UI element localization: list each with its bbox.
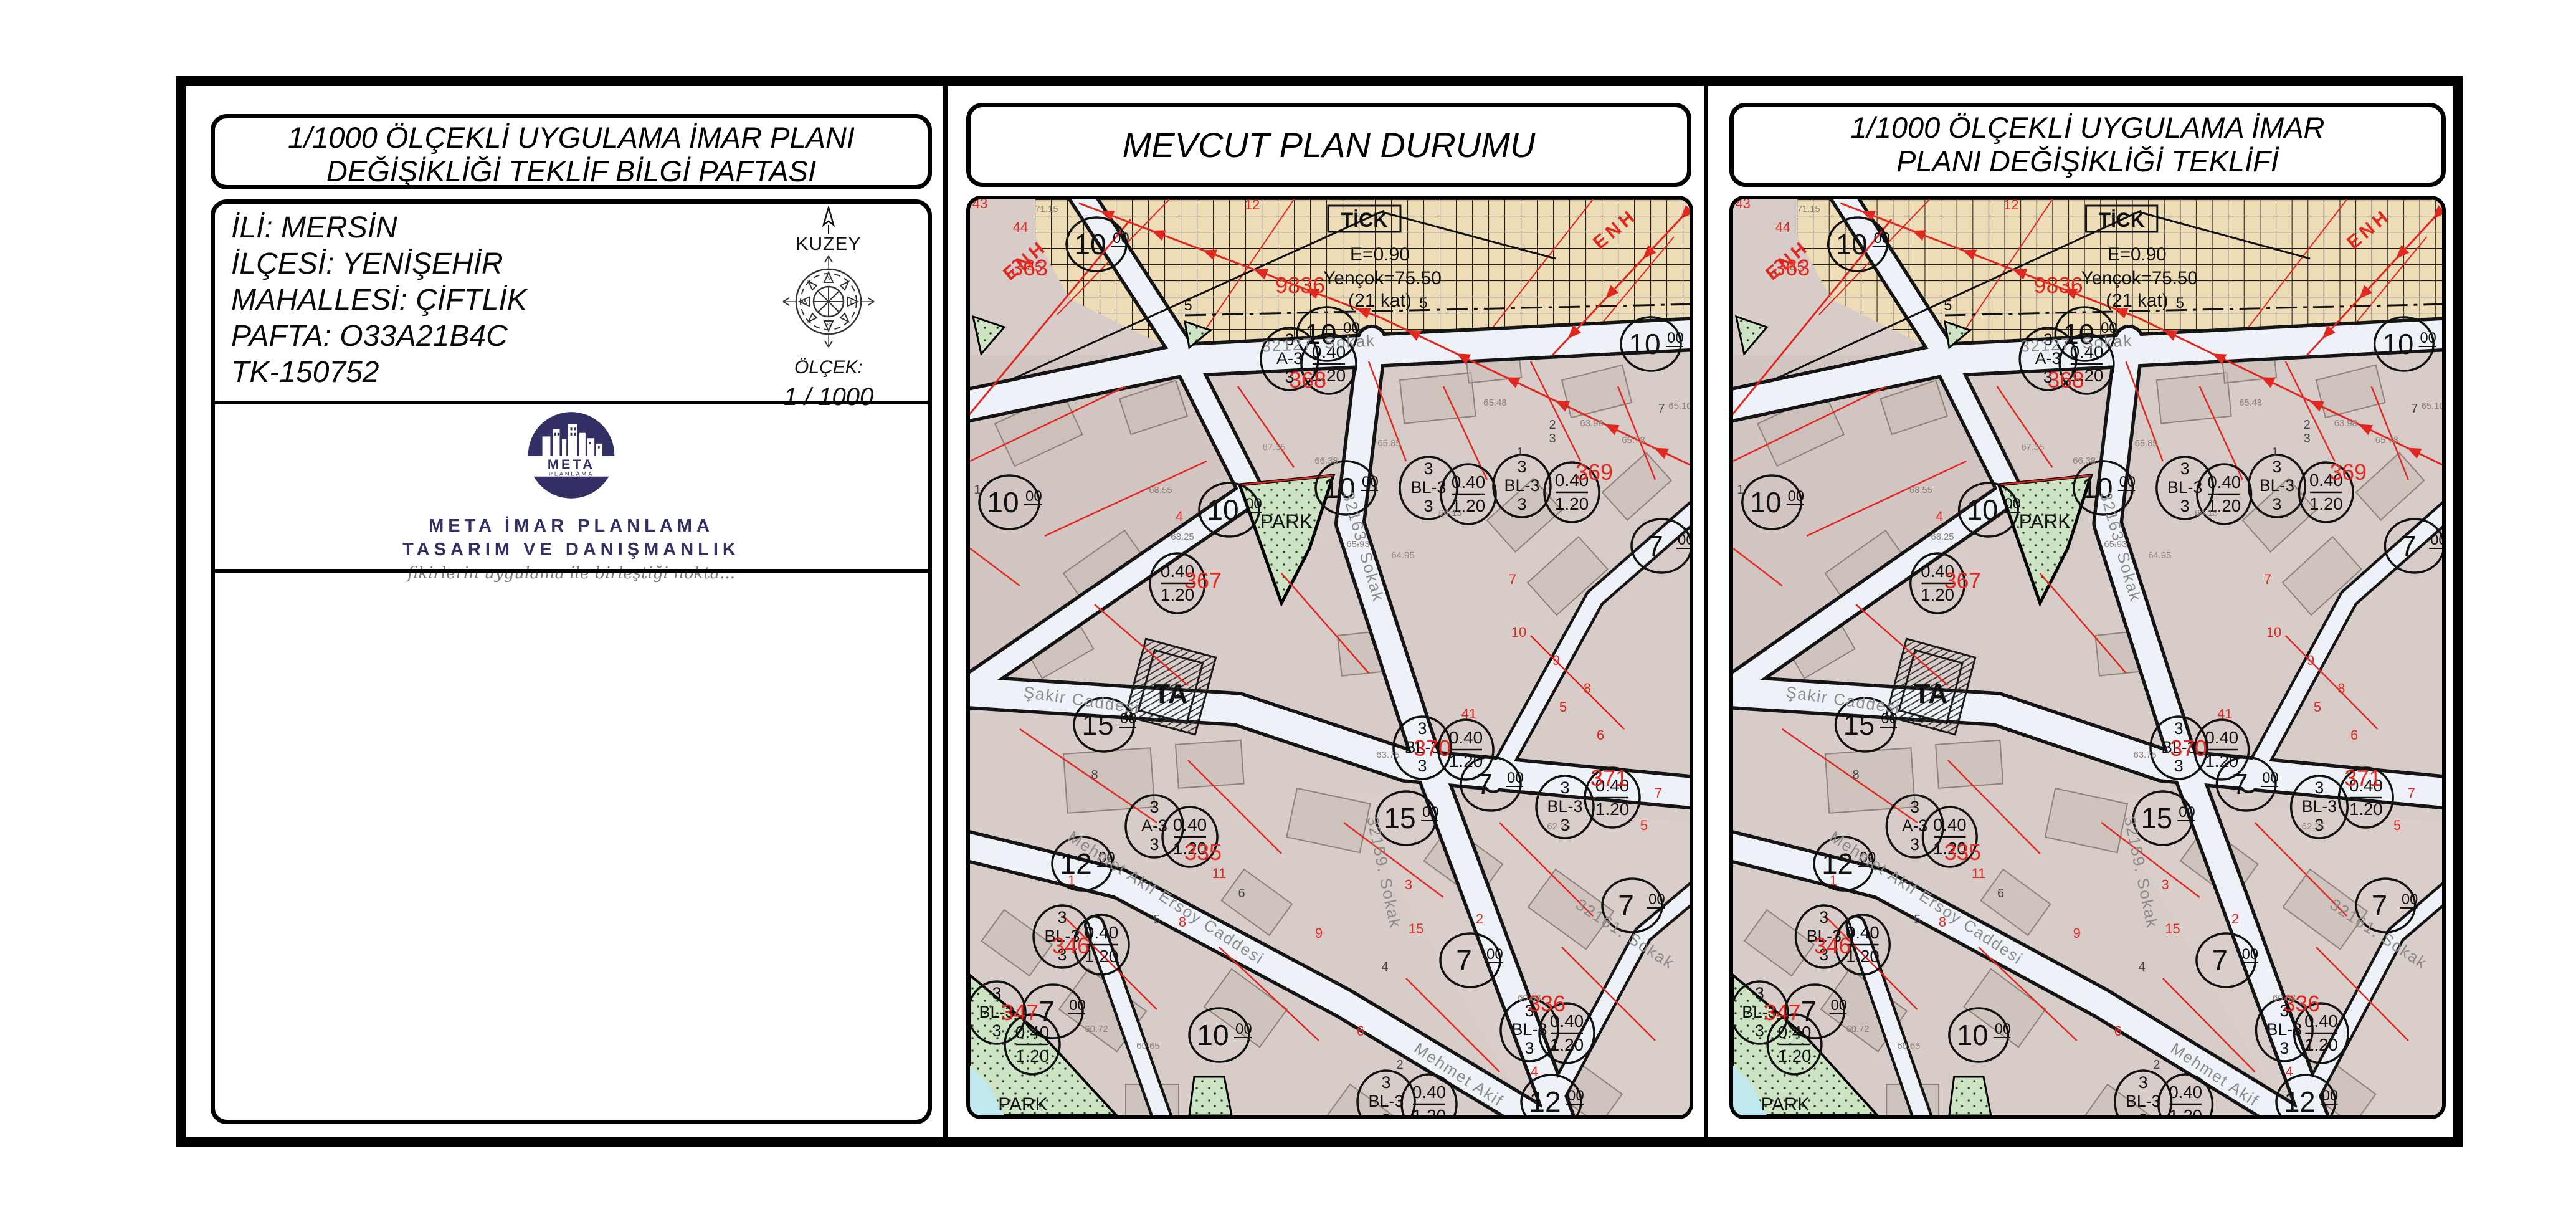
company-logo-block: META PLANLAMA META İMAR PLANLAMA TASARIM… [215, 411, 928, 583]
svg-text:60.65: 60.65 [1136, 1041, 1160, 1051]
svg-text:7: 7 [1655, 785, 1662, 801]
svg-text:9: 9 [1315, 925, 1323, 941]
svg-text:67.35: 67.35 [1262, 442, 1286, 452]
svg-text:15: 15 [1843, 709, 1875, 741]
svg-text:6: 6 [1997, 887, 2004, 900]
svg-text:65.85: 65.85 [2135, 439, 2158, 449]
svg-text:0.40: 0.40 [1449, 728, 1483, 747]
svg-text:3: 3 [1405, 877, 1412, 892]
svg-text:0.40: 0.40 [1778, 1023, 1812, 1042]
svg-text:347: 347 [1764, 1000, 1800, 1025]
info-tk-number: TK-150752 [231, 355, 527, 391]
svg-text:00: 00 [1486, 946, 1503, 963]
svg-text:9836: 9836 [2034, 273, 2083, 298]
svg-text:1.20: 1.20 [1595, 799, 1630, 819]
svg-text:TİCK: TİCK [1341, 209, 1388, 231]
svg-text:12: 12 [2003, 199, 2018, 212]
right-title-line2: PLANI DEĞİŞİKLİĞİ TEKLİFİ [1734, 145, 2441, 178]
svg-text:43: 43 [1736, 199, 1751, 211]
svg-text:W: W [802, 299, 808, 306]
svg-text:347: 347 [1001, 1000, 1038, 1025]
svg-text:15: 15 [1409, 921, 1423, 937]
svg-text:3: 3 [2139, 1073, 2148, 1092]
svg-text:7: 7 [2411, 402, 2418, 416]
svg-text:64.95: 64.95 [2148, 551, 2171, 561]
svg-text:60.83: 60.83 [1518, 993, 1541, 1003]
svg-text:5: 5 [1153, 913, 1160, 927]
teklif-plan-map: TİCKE=0.90Yençok=75.50(21 kat)PARKPARK55… [1729, 196, 2446, 1119]
middle-title: MEVCUT PLAN DURUMU [1123, 125, 1536, 165]
svg-text:00: 00 [1995, 1021, 2011, 1038]
info-province: İLİ: MERSİN [231, 210, 527, 246]
svg-text:3: 3 [1755, 984, 1764, 1003]
svg-text:0.40: 0.40 [1412, 1082, 1447, 1102]
svg-text:63.75: 63.75 [2134, 750, 2157, 760]
svg-text:1: 1 [1516, 446, 1523, 459]
svg-text:10: 10 [1967, 494, 1998, 526]
svg-text:7: 7 [1509, 571, 1516, 587]
svg-text:60.72: 60.72 [1085, 1024, 1108, 1034]
mevcut-plan-map: TİCKE=0.90Yençok=75.50(21 kat)PARKPARK55… [966, 196, 1693, 1119]
svg-text:00: 00 [1648, 891, 1665, 908]
svg-text:7: 7 [2400, 530, 2416, 562]
svg-text:3: 3 [1755, 1021, 1764, 1040]
svg-text:3: 3 [2273, 457, 2282, 476]
svg-text:7: 7 [2212, 945, 2228, 976]
svg-text:TA: TA [1153, 679, 1187, 709]
svg-text:0.40: 0.40 [2207, 472, 2241, 492]
svg-text:00: 00 [2262, 770, 2278, 786]
svg-text:9: 9 [2307, 652, 2314, 668]
svg-text:00: 00 [1069, 997, 1086, 1014]
svg-text:TİCK: TİCK [2099, 209, 2145, 231]
svg-text:3: 3 [2304, 432, 2311, 446]
svg-text:3: 3 [2180, 459, 2190, 478]
svg-text:41: 41 [2217, 706, 2232, 722]
left-title-line1: 1/1000 ÖLÇEKLİ UYGULAMA İMAR PLANI [215, 121, 928, 155]
svg-text:PARK: PARK [998, 1094, 1047, 1115]
svg-text:45: 45 [1027, 259, 1042, 275]
info-district: İLÇESİ: YENİŞEHİR [231, 246, 527, 282]
svg-text:7: 7 [1456, 944, 1472, 976]
scale-value: 1 / 1000 [784, 383, 874, 411]
svg-text:10: 10 [2266, 624, 2281, 640]
svg-text:1.20: 1.20 [1550, 1035, 1584, 1054]
svg-text:62.25: 62.25 [2302, 822, 2325, 832]
svg-text:64.13: 64.13 [2195, 508, 2218, 518]
svg-text:1.20: 1.20 [1555, 494, 1589, 513]
svg-text:370: 370 [2170, 736, 2207, 761]
svg-text:10: 10 [1957, 1019, 1988, 1051]
north-compass-block: KUZEY N E [763, 206, 894, 411]
svg-text:4: 4 [1381, 960, 1388, 974]
info-sheet-no: PAFTA: O33A21B4C [231, 318, 527, 355]
svg-text:BL-3: BL-3 [2302, 797, 2337, 816]
svg-text:10: 10 [1836, 229, 1867, 260]
svg-text:367: 367 [1944, 568, 1981, 593]
svg-text:00: 00 [2119, 474, 2136, 490]
section-divider-1 [943, 86, 948, 1137]
svg-text:11: 11 [1212, 866, 1227, 881]
svg-text:1.20: 1.20 [1015, 1046, 1050, 1066]
svg-text:369: 369 [1576, 459, 1613, 485]
svg-text:META: META [548, 457, 595, 472]
svg-text:367: 367 [1184, 568, 1222, 593]
svg-text:346: 346 [1814, 933, 1851, 958]
svg-text:3: 3 [1381, 1110, 1390, 1115]
svg-text:4: 4 [1176, 508, 1183, 524]
svg-text:1: 1 [2272, 446, 2279, 459]
svg-text:5: 5 [1944, 297, 1952, 314]
svg-text:4: 4 [2139, 960, 2146, 974]
svg-text:0.40: 0.40 [2169, 1082, 2202, 1102]
svg-text:3: 3 [1423, 497, 1433, 515]
svg-text:65.48: 65.48 [1483, 398, 1507, 408]
svg-text:12: 12 [1529, 1086, 1561, 1115]
company-name-line2: TASARIM VE DANIŞMANLIK [402, 538, 740, 561]
left-title-line2: DEĞİŞİKLİĞİ TEKLİF BİLGİ PAFTASI [215, 155, 928, 188]
svg-text:43: 43 [972, 199, 987, 211]
svg-text:3: 3 [992, 1021, 1001, 1040]
svg-text:00: 00 [1235, 1021, 1252, 1038]
location-info: İLİ: MERSİN İLÇESİ: YENİŞEHİR MAHALLESİ:… [231, 210, 527, 391]
svg-text:10: 10 [1628, 328, 1660, 360]
svg-text:00: 00 [1667, 330, 1684, 346]
svg-text:00: 00 [1025, 488, 1042, 505]
svg-text:10: 10 [1197, 1019, 1229, 1051]
svg-text:Yençok=75.50: Yençok=75.50 [2081, 268, 2198, 289]
svg-text:3: 3 [1910, 798, 1919, 816]
svg-text:3: 3 [1149, 798, 1159, 816]
svg-text:3: 3 [1517, 495, 1526, 513]
cadastral-map-canvas: TİCKE=0.90Yençok=75.50(21 kat)PARKPARK55… [1733, 199, 2442, 1115]
svg-text:PARK: PARK [2019, 510, 2071, 533]
svg-text:63.98: 63.98 [2334, 419, 2357, 429]
svg-text:00: 00 [2402, 891, 2418, 908]
svg-text:1.20: 1.20 [2349, 799, 2383, 819]
svg-text:6: 6 [2350, 727, 2358, 743]
svg-text:65.48: 65.48 [2239, 398, 2262, 408]
svg-text:65.10: 65.10 [1668, 401, 1690, 411]
svg-text:5: 5 [1914, 913, 1921, 927]
scale-label: ÖLÇEK: [794, 357, 863, 378]
svg-text:1.20: 1.20 [1449, 752, 1483, 771]
svg-text:E=0.90: E=0.90 [2108, 244, 2166, 265]
svg-text:3: 3 [2174, 719, 2184, 738]
svg-text:15: 15 [1081, 709, 1113, 741]
svg-text:3: 3 [1517, 457, 1526, 476]
svg-text:64.13: 64.13 [1438, 508, 1462, 518]
svg-text:68.25: 68.25 [1931, 532, 1954, 542]
svg-text:2: 2 [1549, 418, 1556, 432]
company-name-line1: META İMAR PLANLAMA [402, 514, 740, 538]
svg-text:368: 368 [2047, 368, 2084, 393]
svg-text:65.85: 65.85 [1377, 438, 1401, 449]
svg-text:0.40: 0.40 [2205, 728, 2238, 747]
north-arrow-icon [816, 206, 841, 234]
svg-text:3: 3 [992, 984, 1001, 1003]
compass-rose-icon: N E S W [782, 255, 875, 348]
svg-text:5: 5 [1419, 295, 1427, 312]
svg-text:15: 15 [2141, 803, 2172, 834]
svg-text:00: 00 [2004, 495, 2020, 512]
right-panel-title-box: 1/1000 ÖLÇEKLİ UYGULAMA İMAR PLANI DEĞİŞ… [1729, 103, 2446, 187]
svg-text:3: 3 [2279, 1039, 2289, 1057]
svg-text:1.20: 1.20 [1778, 1046, 1812, 1066]
svg-text:335: 335 [1184, 839, 1222, 865]
svg-text:S: S [827, 322, 831, 329]
svg-text:8: 8 [2337, 680, 2345, 696]
svg-text:00: 00 [2242, 946, 2258, 963]
svg-text:5: 5 [2176, 295, 2184, 312]
svg-text:9836: 9836 [1275, 272, 1325, 298]
svg-text:BL-3: BL-3 [1368, 1092, 1404, 1110]
divider-info-logo [215, 401, 928, 404]
svg-text:2: 2 [1476, 911, 1483, 927]
svg-text:0.40: 0.40 [1933, 815, 1967, 834]
svg-text:6: 6 [1357, 1023, 1364, 1039]
svg-text:1.20: 1.20 [2205, 752, 2238, 771]
svg-text:8: 8 [1091, 768, 1098, 782]
svg-text:41: 41 [1461, 706, 1476, 722]
svg-text:(21 kat): (21 kat) [2106, 290, 2168, 311]
svg-text:5: 5 [1640, 818, 1648, 833]
svg-text:00: 00 [1422, 804, 1439, 821]
svg-text:371: 371 [1590, 765, 1628, 791]
svg-text:4: 4 [1936, 508, 1943, 524]
svg-text:1: 1 [974, 483, 981, 497]
svg-text:8: 8 [1853, 768, 1860, 782]
svg-text:66.38: 66.38 [1314, 456, 1338, 466]
left-panel-body: İLİ: MERSİN İLÇESİ: YENİŞEHİR MAHALLESİ:… [211, 199, 932, 1124]
svg-text:E=0.90: E=0.90 [1350, 244, 1410, 265]
svg-text:71.15: 71.15 [1035, 204, 1058, 214]
svg-text:BL-3: BL-3 [1547, 797, 1582, 816]
svg-text:(21 kat): (21 kat) [1348, 290, 1412, 311]
svg-text:5: 5 [2393, 818, 2401, 833]
info-neighborhood: MAHALLESİ: ÇİFTLİK [231, 282, 527, 318]
svg-text:BL-3: BL-3 [1504, 476, 1539, 495]
svg-text:71.15: 71.15 [1797, 204, 1820, 214]
svg-text:00: 00 [1362, 474, 1379, 490]
svg-text:0.40: 0.40 [1015, 1023, 1050, 1042]
svg-text:44: 44 [1013, 219, 1028, 235]
svg-text:6: 6 [1238, 887, 1245, 900]
svg-text:BL-3: BL-3 [2260, 476, 2294, 495]
svg-text:8: 8 [1584, 680, 1591, 696]
svg-text:3: 3 [1524, 1039, 1534, 1057]
svg-text:62.25: 62.25 [1547, 821, 1571, 832]
left-panel-title-box: 1/1000 ÖLÇEKLİ UYGULAMA İMAR PLANI DEĞİŞ… [211, 114, 932, 189]
svg-text:00: 00 [1831, 997, 1847, 1014]
svg-text:65.93: 65.93 [2104, 540, 2127, 550]
svg-text:1: 1 [1737, 483, 1744, 497]
svg-text:00: 00 [1788, 488, 1804, 505]
meta-planlama-logo-icon: META PLANLAMA [518, 411, 625, 504]
north-label: KUZEY [796, 234, 861, 255]
svg-text:3: 3 [1423, 459, 1433, 478]
svg-text:00: 00 [1507, 770, 1524, 786]
svg-text:3: 3 [1381, 1073, 1390, 1092]
svg-text:64.95: 64.95 [1391, 550, 1415, 561]
svg-text:00: 00 [1874, 230, 1890, 247]
cadastral-map-canvas: TİCKE=0.90Yençok=75.50(21 kat)PARKPARK55… [970, 199, 1690, 1115]
svg-text:00: 00 [2179, 804, 2195, 821]
svg-text:5: 5 [2314, 699, 2321, 715]
svg-text:TA: TA [1914, 679, 1948, 709]
svg-text:0.40: 0.40 [1173, 815, 1207, 834]
svg-text:15: 15 [1384, 802, 1415, 834]
svg-text:1.20: 1.20 [2169, 1106, 2202, 1115]
svg-text:4: 4 [1531, 1064, 1538, 1079]
svg-text:3: 3 [2273, 495, 2282, 513]
svg-text:12: 12 [2284, 1086, 2315, 1115]
svg-text:7: 7 [1647, 530, 1663, 562]
svg-text:6: 6 [1597, 727, 1604, 743]
svg-text:371: 371 [2344, 766, 2381, 791]
svg-text:10: 10 [1511, 624, 1526, 640]
svg-text:PARK: PARK [1761, 1094, 1810, 1115]
svg-text:1.20: 1.20 [1412, 1106, 1447, 1115]
svg-text:7: 7 [2264, 571, 2271, 587]
svg-text:00: 00 [1113, 230, 1129, 247]
svg-text:368: 368 [1289, 367, 1326, 393]
svg-text:7: 7 [2372, 890, 2387, 922]
svg-text:44: 44 [1775, 219, 1790, 235]
svg-text:3: 3 [1910, 835, 1919, 854]
svg-text:63.98: 63.98 [1580, 418, 1604, 429]
svg-text:0.40: 0.40 [1452, 472, 1486, 492]
svg-text:3: 3 [2315, 778, 2324, 797]
svg-text:10: 10 [1750, 487, 1781, 518]
svg-text:00: 00 [2420, 330, 2436, 346]
svg-text:1.20: 1.20 [2309, 494, 2343, 513]
svg-text:00: 00 [1567, 1087, 1584, 1104]
svg-text:3: 3 [1057, 908, 1067, 927]
svg-text:15: 15 [2165, 921, 2180, 937]
svg-text:10: 10 [1074, 228, 1106, 260]
company-tagline: fikirlerin uygulama ile birleştiği nokta… [407, 564, 735, 583]
svg-text:N: N [826, 275, 830, 282]
svg-text:3: 3 [1549, 432, 1556, 446]
svg-text:7: 7 [2408, 785, 2415, 801]
svg-text:5: 5 [1559, 699, 1567, 715]
svg-text:63.75: 63.75 [1376, 750, 1400, 760]
svg-text:67.35: 67.35 [2021, 442, 2044, 452]
svg-text:65.93: 65.93 [1346, 539, 1370, 550]
svg-text:3: 3 [1560, 778, 1569, 797]
section-divider-2 [1704, 86, 1708, 1137]
svg-text:68.55: 68.55 [1909, 485, 1932, 495]
svg-text:00: 00 [1245, 495, 1262, 512]
svg-text:PLANLAMA: PLANLAMA [549, 470, 594, 477]
svg-text:60.83: 60.83 [2273, 993, 2296, 1003]
svg-text:68.55: 68.55 [1149, 485, 1172, 495]
svg-text:3: 3 [2180, 497, 2190, 515]
svg-text:00: 00 [1678, 532, 1690, 548]
divider-logo-empty [215, 569, 928, 573]
svg-text:00: 00 [2322, 1087, 2338, 1104]
svg-text:45: 45 [1789, 259, 1804, 275]
svg-text:370: 370 [1414, 735, 1451, 761]
svg-text:10: 10 [987, 486, 1019, 518]
svg-text:6: 6 [2114, 1023, 2122, 1039]
svg-text:2: 2 [2153, 1058, 2160, 1072]
svg-text:3: 3 [1819, 908, 1828, 927]
svg-text:9: 9 [2073, 925, 2081, 941]
svg-text:4: 4 [2286, 1064, 2293, 1079]
svg-text:10: 10 [1207, 494, 1238, 526]
svg-text:335: 335 [1944, 840, 1981, 865]
svg-text:11: 11 [1972, 866, 1986, 881]
svg-text:2: 2 [2304, 418, 2311, 432]
svg-text:12: 12 [1245, 199, 1260, 212]
svg-text:68.25: 68.25 [1171, 532, 1194, 542]
svg-text:10: 10 [2382, 328, 2413, 360]
svg-text:7: 7 [1658, 402, 1665, 416]
svg-text:7: 7 [1618, 889, 1634, 922]
svg-text:1: 1 [1068, 872, 1075, 888]
svg-text:5: 5 [1184, 297, 1192, 314]
svg-text:65.10: 65.10 [2422, 401, 2442, 411]
svg-text:00: 00 [2430, 532, 2442, 548]
svg-text:3: 3 [2162, 877, 2169, 892]
svg-text:60.72: 60.72 [1846, 1024, 1870, 1034]
svg-text:66.38: 66.38 [2073, 456, 2096, 466]
svg-text:2: 2 [2231, 911, 2239, 927]
svg-text:65.78: 65.78 [1622, 435, 1645, 446]
svg-text:3: 3 [2139, 1110, 2148, 1115]
svg-text:2: 2 [1396, 1058, 1403, 1072]
svg-text:369: 369 [2330, 460, 2367, 485]
svg-text:60.65: 60.65 [1897, 1041, 1920, 1051]
svg-text:9: 9 [1552, 652, 1560, 668]
svg-text:Yençok=75.50: Yençok=75.50 [1323, 268, 1442, 289]
svg-text:65.78: 65.78 [2375, 436, 2398, 446]
svg-text:PARK: PARK [1260, 510, 1313, 533]
middle-panel-title-box: MEVCUT PLAN DURUMU [966, 103, 1691, 187]
svg-text:3: 3 [1149, 835, 1159, 854]
svg-text:346: 346 [1052, 933, 1090, 958]
svg-text:1.20: 1.20 [2304, 1035, 2338, 1054]
svg-text:1: 1 [1830, 872, 1837, 888]
svg-text:BL-3: BL-3 [2126, 1092, 2160, 1110]
svg-text:E: E [850, 299, 855, 306]
right-title-line1: 1/1000 ÖLÇEKLİ UYGULAMA İMAR [1734, 111, 2441, 145]
